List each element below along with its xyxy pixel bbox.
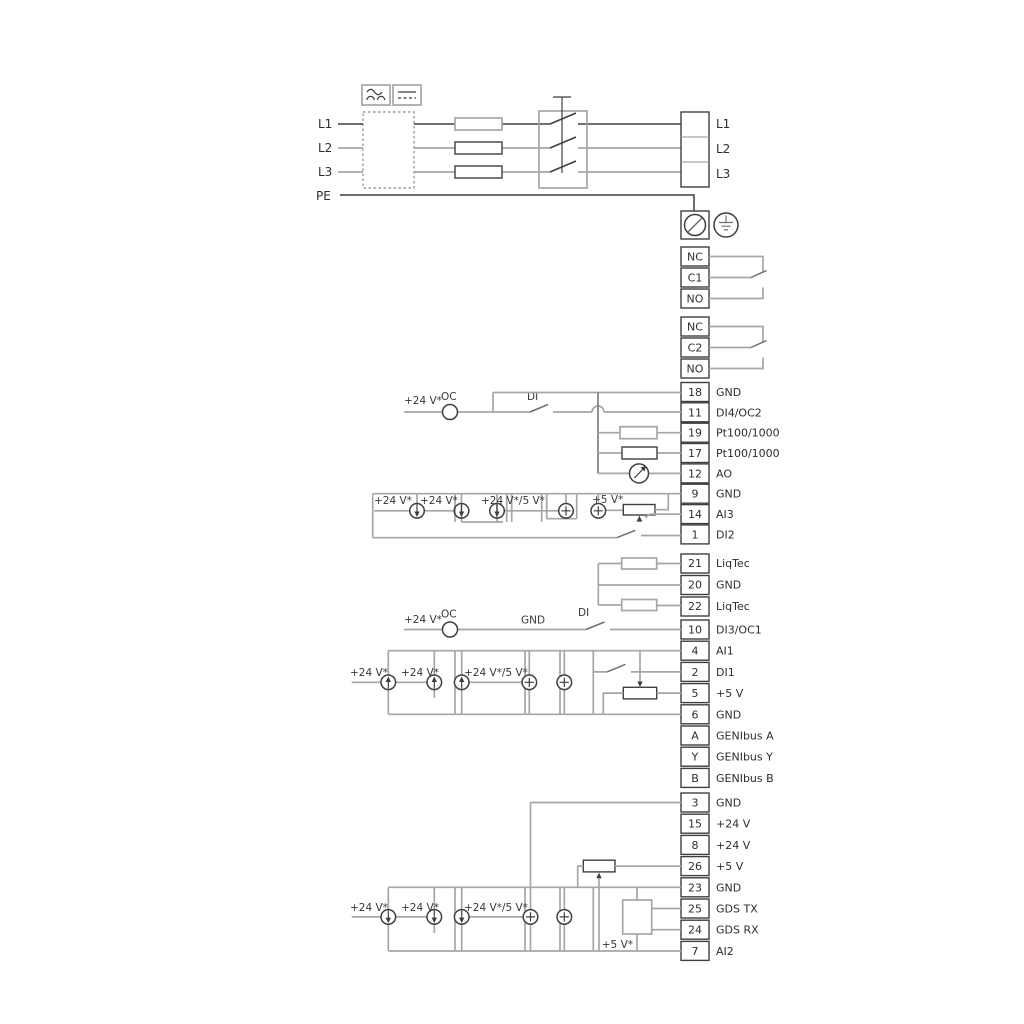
terminal-22-num: 22 — [688, 600, 702, 613]
input-l2-label: L2 — [318, 141, 332, 155]
wiper-arrow-icon — [637, 682, 642, 688]
analog-output-meter-icon — [630, 464, 649, 483]
terminal-2-label: DI1 — [716, 666, 735, 679]
terminal-15-label: +24 V — [716, 818, 751, 831]
relay1-c1-label: C1 — [688, 272, 703, 285]
terminal-strip-1: 18 11 19 17 12 9 14 1 GND DI4/OC2 Pt100/… — [681, 383, 780, 544]
main-switch-icon — [539, 97, 587, 188]
terminal-10-num: 10 — [688, 624, 702, 637]
ai2-source-group: +24 V* +24 V* +24 V*/5 V* — [350, 803, 681, 952]
plus24-annotation: +24 V* — [374, 495, 412, 507]
plus24-annotation: +24 V* — [420, 495, 458, 507]
fuse-l2-icon — [455, 142, 502, 154]
output-terminal-block: L1 L2 L3 — [681, 112, 730, 187]
pe-label: PE — [316, 189, 331, 203]
output-l1-label: L1 — [716, 117, 730, 131]
di3-oc1-wiring: +24 V* OC GND DI — [404, 607, 681, 637]
current-source-icon — [454, 910, 469, 925]
pe-terminal-icon — [681, 211, 709, 239]
relay2-section: NC C2 NO — [681, 317, 767, 378]
liqtec-wiring — [598, 558, 681, 611]
fuse-l1-icon — [455, 118, 502, 130]
terminal-4-num: 4 — [692, 645, 699, 658]
di2-switch-icon — [617, 530, 636, 537]
terminal-1-num: 1 — [692, 528, 699, 541]
terminal-4-label: AI1 — [716, 645, 734, 658]
relay2-c2-label: C2 — [688, 342, 703, 355]
terminal-8-label: +24 V — [716, 839, 751, 852]
terminal-7-num: 7 — [692, 945, 699, 958]
wiper-arrow-icon — [637, 516, 643, 522]
current-source-icon — [490, 504, 505, 519]
current-source-icon — [454, 675, 469, 690]
power-section: L1 L2 L3 PE — [316, 85, 738, 239]
terminal-1-label: DI2 — [716, 528, 735, 541]
pt100-resistor-icon-1 — [620, 427, 657, 439]
plus24-annotation: +24 V* — [404, 614, 442, 626]
plus24-5-annotation: +24 V*/5 V* — [464, 667, 528, 679]
terminal-5-label: +5 V — [716, 687, 744, 700]
terminal-b-num: B — [691, 772, 699, 785]
terminal-11-num: 11 — [688, 406, 702, 419]
terminal-3-label: GND — [716, 797, 741, 810]
relay2-no-label: NO — [687, 363, 704, 376]
di4-switch-icon — [530, 405, 548, 413]
terminal-19-label: Pt100/1000 — [716, 427, 780, 440]
plus24-5-annotation: +24 V*/5 V* — [481, 495, 545, 507]
oc-annotation: OC — [441, 609, 457, 621]
current-source-icon — [427, 675, 442, 690]
terminal-19-num: 19 — [688, 427, 702, 440]
terminal-9-num: 9 — [692, 488, 699, 501]
di-annotation: DI — [578, 607, 589, 619]
terminal-a-num: A — [691, 730, 699, 743]
terminal-22-label: LiqTec — [716, 600, 750, 613]
gds-sensor-box — [623, 900, 652, 934]
gnd-annotation: GND — [521, 615, 545, 627]
pt100-resistor-icon-2 — [622, 447, 657, 459]
terminal-9-label: GND — [716, 488, 741, 501]
relay1-section: NC C1 NO — [681, 247, 767, 308]
terminal-20-label: GND — [716, 579, 741, 592]
terminal-8-num: 8 — [692, 839, 699, 852]
liqtec-resistor-icon-1 — [622, 558, 657, 569]
terminal-a-label: GENIbus A — [716, 730, 774, 743]
voltage-source-icon — [591, 504, 606, 519]
terminal-strip-2: 21 20 22 LiqTec GND LiqTec — [598, 554, 750, 616]
terminal-17-label: Pt100/1000 — [716, 447, 780, 460]
terminal-2-num: 2 — [692, 666, 699, 679]
terminal-3-num: 3 — [692, 797, 699, 810]
terminal-18-num: 18 — [688, 386, 702, 399]
relay1-contact-icon — [709, 257, 767, 299]
fuse-l3-icon — [455, 166, 502, 178]
input-l1-label: L1 — [318, 117, 332, 131]
terminal-6-label: GND — [716, 708, 741, 721]
terminal-21-num: 21 — [688, 557, 702, 570]
terminal-7-label: AI2 — [716, 945, 734, 958]
wiper-arrow-icon — [596, 873, 601, 879]
potentiometer-icon — [623, 687, 656, 699]
relay2-nc-label: NC — [687, 321, 703, 334]
input-l3-label: L3 — [318, 165, 332, 179]
terminal-15-num: 15 — [688, 818, 702, 831]
terminal-strip-3: 10 4 2 5 6 A Y B DI3/OC1 AI1 DI1 +5 V GN… — [681, 620, 774, 787]
ac-symbol-icon — [362, 85, 390, 105]
terminal-y-label: GENIbus Y — [716, 751, 773, 764]
liqtec-resistor-icon-2 — [622, 600, 657, 611]
terminal-17-num: 17 — [688, 447, 702, 460]
terminal-6-num: 6 — [692, 708, 699, 721]
earth-ground-icon — [714, 213, 738, 237]
plus24-annotation: +24 V* — [404, 395, 442, 407]
voltage-source-icon — [557, 675, 572, 690]
voltage-source-icon — [557, 910, 572, 925]
terminal-18-label: GND — [716, 386, 741, 399]
terminal-25-num: 25 — [688, 903, 702, 916]
strip1-wiring: +24 V* OC DI — [404, 391, 681, 483]
current-source-icon — [410, 504, 425, 519]
terminal-23-num: 23 — [688, 881, 702, 894]
current-source-icon — [381, 675, 396, 690]
di1-switch-icon — [607, 664, 626, 672]
current-source-icon — [381, 910, 396, 925]
terminal-y-num: Y — [691, 751, 699, 764]
voltage-source-icon — [523, 910, 538, 925]
wiring-diagram: L1 L2 L3 PE — [0, 0, 1024, 1024]
ai3-source-group: +24 V* +24 V* +24 V*/5 V* +5 V* — [373, 494, 681, 538]
terminal-24-label: GDS RX — [716, 924, 759, 937]
current-source-icon — [454, 504, 469, 519]
voltage-source-icon — [522, 675, 537, 690]
voltage-source-icon — [559, 504, 574, 519]
open-collector-icon — [443, 405, 458, 420]
relay1-no-label: NO — [687, 293, 704, 306]
wiring-diagram-canvas: L1 L2 L3 PE — [0, 0, 1024, 1024]
open-collector-icon — [443, 622, 458, 637]
oc-annotation: OC — [441, 391, 457, 403]
rfi-filter-box — [363, 112, 414, 188]
terminal-26-num: 26 — [688, 860, 702, 873]
output-l3-label: L3 — [716, 167, 730, 181]
terminal-20-num: 20 — [688, 579, 702, 592]
terminal-14-num: 14 — [688, 508, 702, 521]
terminal-12-num: 12 — [688, 467, 702, 480]
terminal-11-label: DI4/OC2 — [716, 406, 762, 419]
current-source-icon — [427, 910, 442, 925]
dc-symbol-icon — [393, 85, 421, 105]
terminal-24-num: 24 — [688, 924, 702, 937]
relay2-contact-icon — [709, 327, 767, 369]
mains-wires — [338, 124, 694, 211]
plus5-annotation: +5 V* — [602, 939, 633, 951]
output-l2-label: L2 — [716, 142, 730, 156]
terminal-25-label: GDS TX — [716, 903, 758, 916]
terminal-14-label: AI3 — [716, 508, 734, 521]
relay1-nc-label: NC — [687, 251, 703, 264]
di3-switch-icon — [586, 622, 605, 630]
terminal-26-label: +5 V — [716, 860, 744, 873]
terminal-10-label: DI3/OC1 — [716, 624, 762, 637]
terminal-5-num: 5 — [692, 687, 699, 700]
terminal-strip-4: 3 15 8 26 23 25 24 7 GND +24 V +24 V +5 … — [681, 793, 759, 960]
ai1-source-group: +24 V* +24 V* +24 V*/5 V* — [350, 651, 681, 715]
terminal-12-label: AO — [716, 467, 732, 480]
potentiometer-icon — [583, 860, 615, 872]
terminal-21-label: LiqTec — [716, 557, 750, 570]
plus24-5-annotation: +24 V*/5 V* — [464, 902, 528, 914]
terminal-b-label: GENIbus B — [716, 772, 774, 785]
terminal-23-label: GND — [716, 881, 741, 894]
